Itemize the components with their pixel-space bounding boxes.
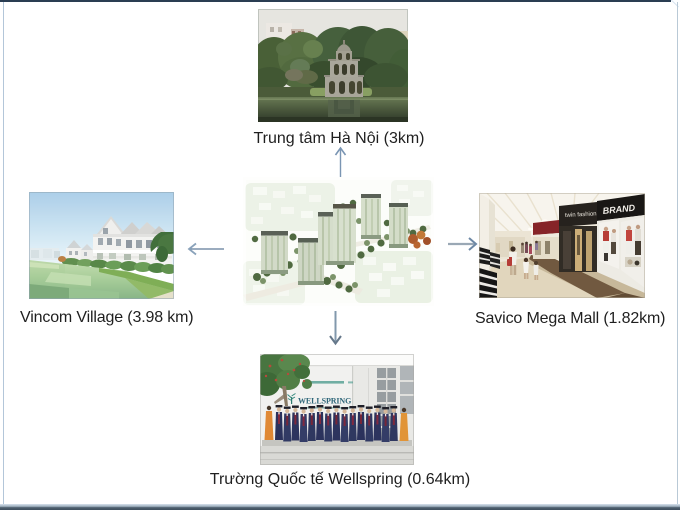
svg-text:WELLSPRING: WELLSPRING <box>298 397 351 406</box>
